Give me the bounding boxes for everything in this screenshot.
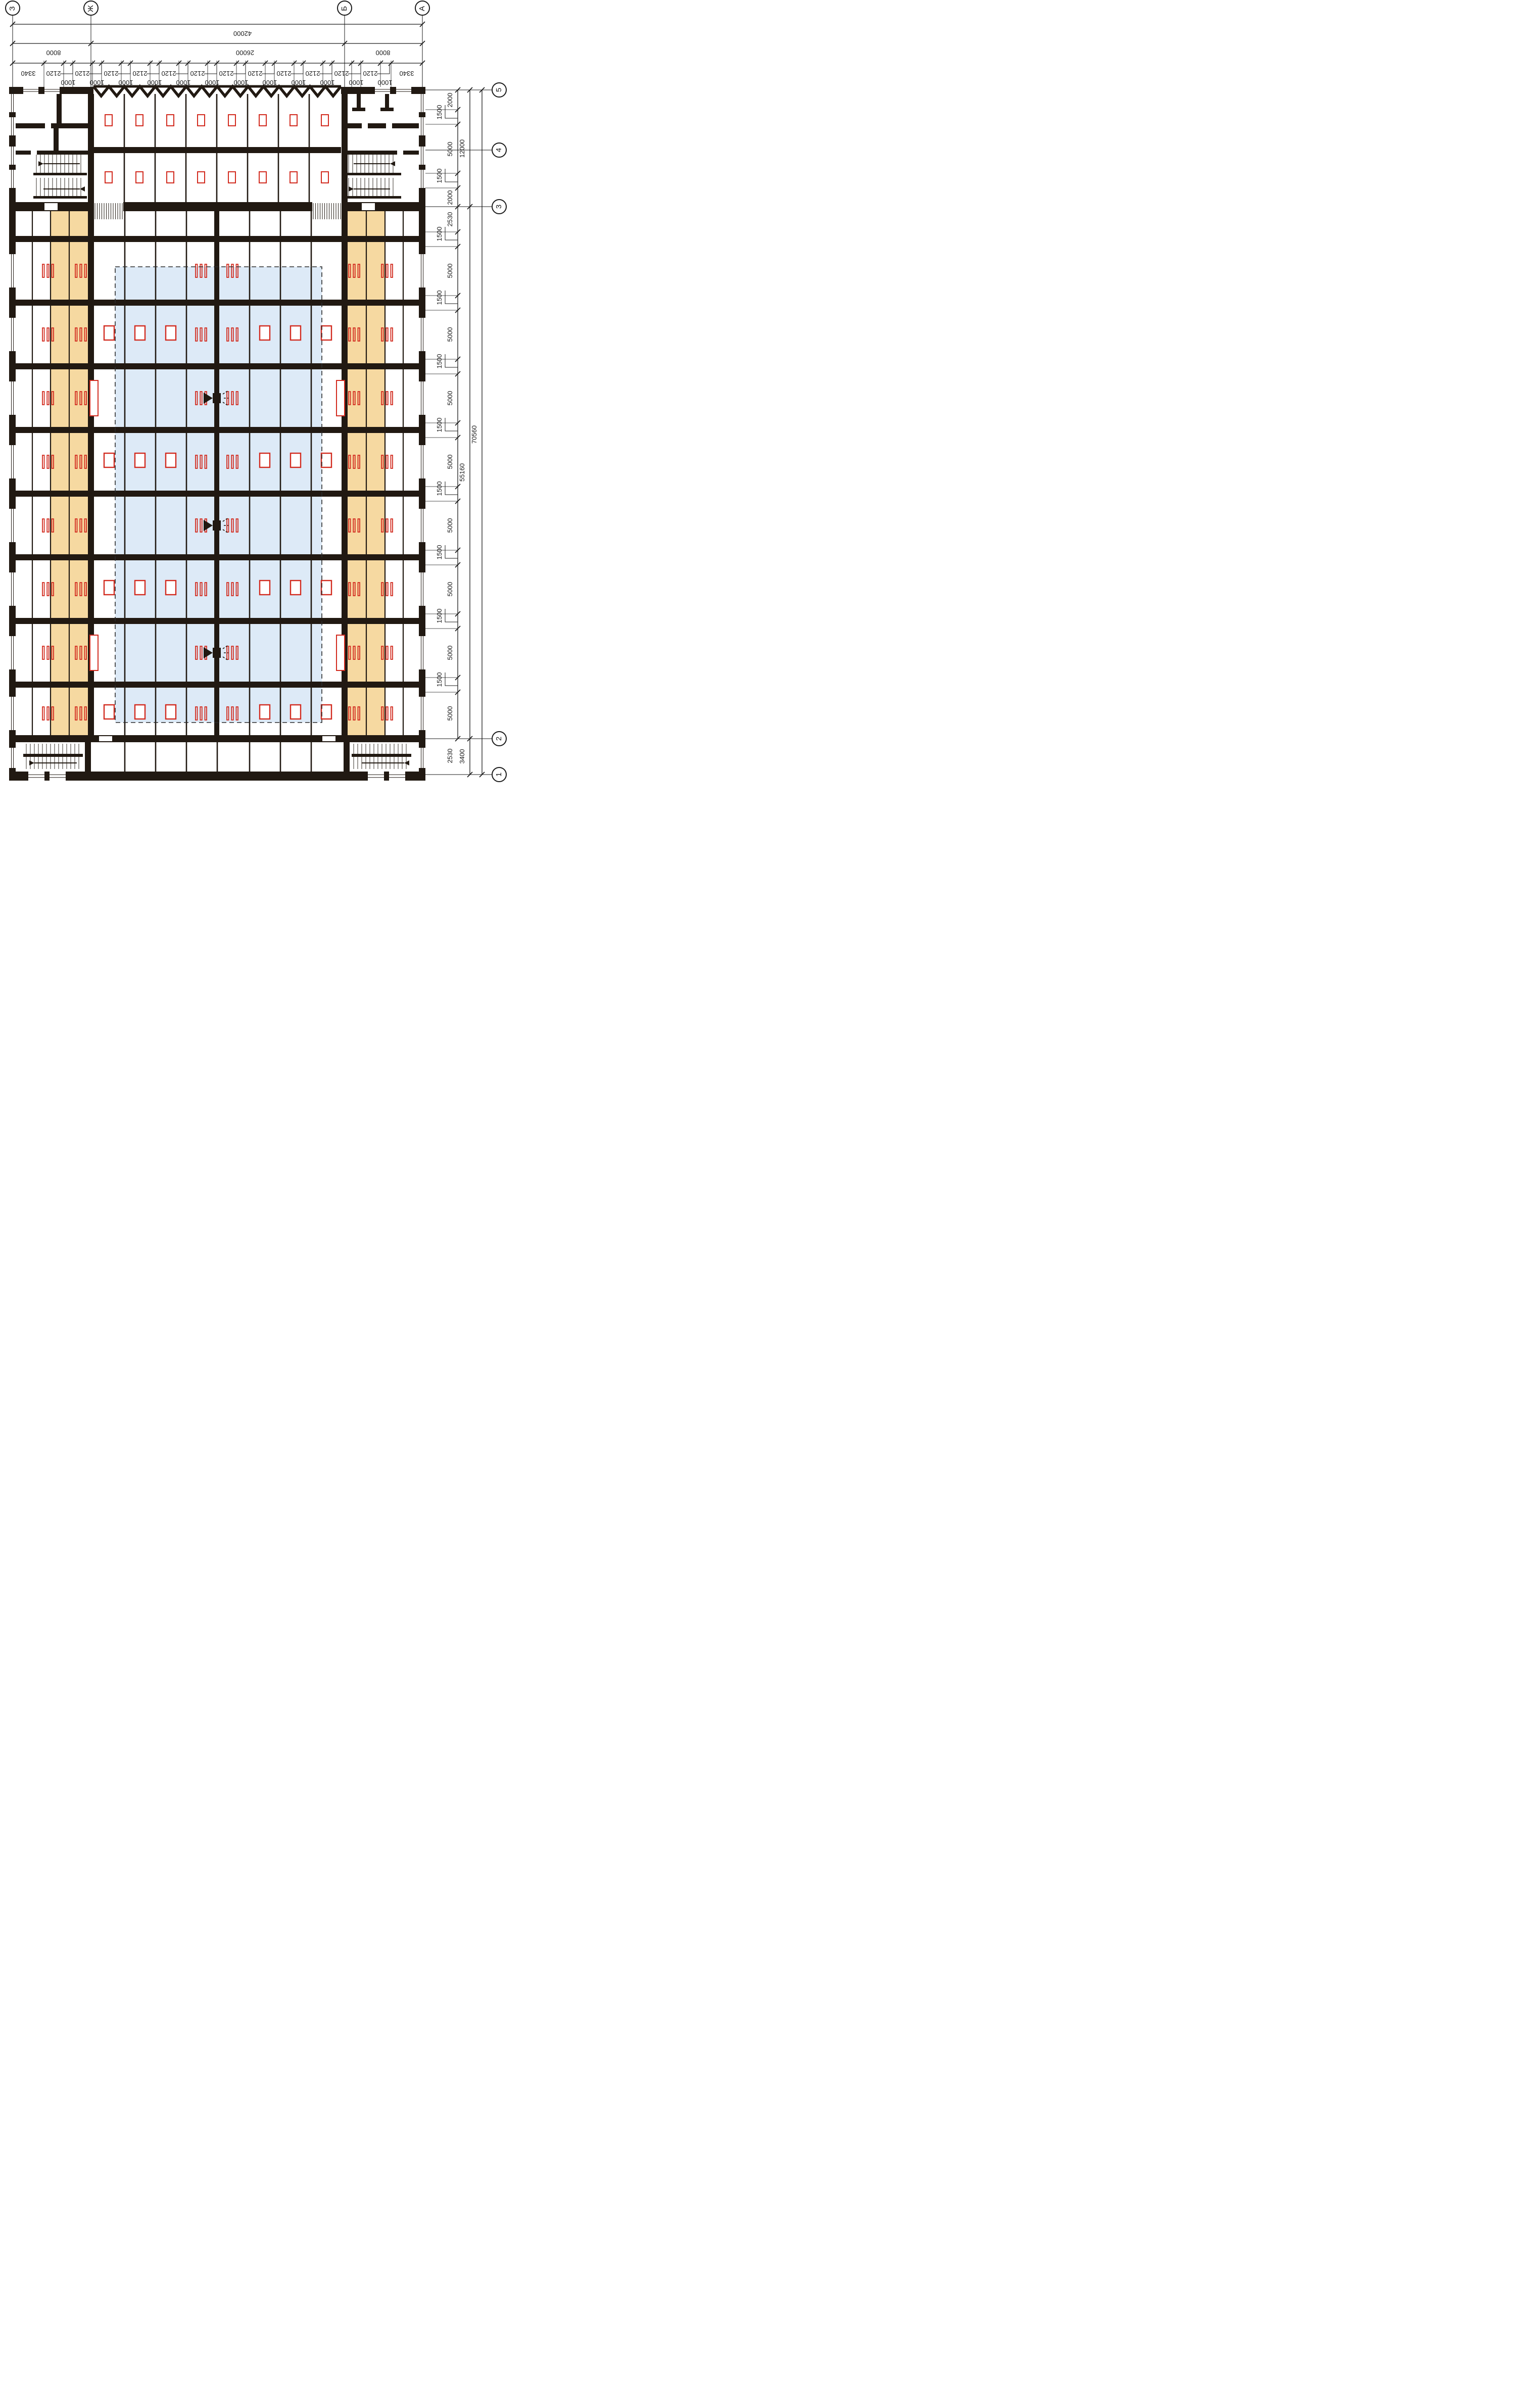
window	[9, 381, 16, 415]
window	[419, 636, 425, 669]
dim-middle: 3400	[458, 749, 466, 764]
dim-leader	[377, 64, 390, 74]
equipment-outline	[135, 326, 145, 340]
heater-symbol	[391, 328, 393, 341]
equipment-outline	[259, 115, 266, 126]
gate-outline	[336, 380, 345, 416]
equipment-outline	[228, 172, 235, 183]
equipment-outline	[105, 115, 112, 126]
equipment-outline	[260, 581, 270, 595]
axis-letter: А	[418, 6, 426, 11]
heater-symbol	[391, 455, 393, 468]
window	[419, 94, 425, 112]
equipment-outline	[291, 581, 301, 595]
dim-seg: 2530	[446, 212, 454, 227]
window	[419, 318, 425, 351]
dim-pier: 1000	[349, 79, 364, 86]
stair-arrow-head	[29, 760, 34, 765]
heater-symbol	[386, 392, 388, 405]
gate-outline	[336, 635, 345, 670]
dim-pier: 1000	[234, 79, 249, 86]
stair-landing	[33, 173, 87, 175]
dim-cell: 5000	[446, 582, 454, 597]
heater-symbol	[386, 707, 388, 720]
dim-band: 1500	[436, 227, 443, 242]
dim-band: 1500	[436, 354, 443, 369]
equipment-outline	[167, 115, 174, 126]
heater-symbol	[386, 264, 388, 277]
dim-cell: 5000	[446, 264, 454, 278]
dim-seg: 2000	[446, 93, 454, 108]
equipment-outline	[228, 115, 235, 126]
heater-symbol	[391, 646, 393, 659]
dim-window: 2120	[133, 70, 148, 77]
stair-arrow-head	[80, 186, 85, 191]
window	[368, 772, 384, 781]
stair-landing	[33, 196, 87, 199]
window	[9, 697, 16, 730]
camera-body	[213, 520, 221, 531]
dim-pier: 1000	[263, 79, 277, 86]
equipment-outline	[166, 581, 176, 595]
wall	[16, 151, 31, 155]
wall	[344, 742, 350, 772]
dim-pier: 1000	[61, 79, 76, 86]
window	[419, 697, 425, 730]
dim-band: 1500	[436, 672, 443, 687]
dim-pier: 1000	[378, 79, 393, 86]
axis-number: 1	[495, 773, 503, 777]
wall	[9, 87, 16, 781]
heater-symbol	[47, 455, 49, 468]
dim-cell: 5000	[446, 706, 454, 721]
window	[419, 117, 425, 135]
equipment-outline	[135, 453, 145, 467]
wall	[16, 735, 419, 742]
wall	[57, 94, 62, 123]
dim-window: 2120	[306, 70, 320, 77]
gate-outline	[90, 635, 98, 670]
heater-symbol	[391, 392, 393, 405]
window	[419, 254, 425, 287]
stair-landing	[23, 754, 83, 757]
dim-seg: 2530	[446, 749, 454, 763]
equipment-outline	[291, 705, 301, 719]
dim-band: 1500	[436, 482, 443, 496]
dim-window: 2120	[104, 70, 119, 77]
dim-window: 2120	[277, 70, 292, 77]
equipment-outline	[290, 115, 297, 126]
heater-symbol	[386, 328, 388, 341]
window	[9, 318, 16, 351]
wall-opening	[44, 203, 58, 210]
dim-band: 1500	[436, 545, 443, 560]
equipment-outline	[321, 115, 328, 126]
wall	[85, 742, 91, 772]
wall	[16, 123, 45, 128]
equipment-outline	[259, 172, 266, 183]
window	[9, 636, 16, 669]
dim-window: 2120	[219, 70, 234, 77]
floor-plan-sheet: З Ж Б А 5 4 3 2 1 42000 8000 26000 8000 …	[0, 0, 507, 792]
camera-body	[213, 648, 221, 658]
window	[419, 572, 425, 606]
heater-symbol	[47, 264, 49, 277]
heater-symbol	[391, 707, 393, 720]
heater-symbol	[42, 646, 44, 659]
window	[9, 117, 16, 135]
wall	[37, 151, 88, 155]
dim-seg: 1500	[436, 105, 443, 120]
top-dimension-labels: 42000 8000 26000 8000 3340 3340 2120 212…	[21, 30, 414, 86]
window	[419, 147, 425, 165]
stair-landing	[352, 754, 411, 757]
dim-cell: 5000	[446, 455, 454, 469]
heater-symbol	[42, 519, 44, 532]
heater-symbol	[47, 707, 49, 720]
dim-seg: 1500	[436, 169, 443, 183]
wall	[54, 127, 59, 151]
wall	[368, 123, 386, 128]
window	[419, 381, 425, 415]
wall	[419, 87, 425, 781]
heater-symbol	[47, 646, 49, 659]
equipment-outline	[135, 581, 145, 595]
wall	[93, 147, 341, 153]
dim-pier: 1000	[205, 79, 220, 86]
stair-arrow-head	[349, 186, 354, 191]
floor-plan-drawing: З Ж Б А 5 4 3 2 1 42000 8000 26000 8000 …	[0, 0, 507, 792]
equipment-outline	[105, 172, 112, 183]
window	[9, 94, 16, 112]
axis-number: 3	[495, 205, 503, 209]
right-dimension-labels: 2000 1500 5000 1500 2000 2530 1500 1500 …	[436, 93, 478, 764]
heater-symbol	[47, 392, 49, 405]
window	[50, 772, 66, 781]
window	[9, 445, 16, 478]
equipment-outline	[198, 172, 205, 183]
equipment-outline	[166, 705, 176, 719]
stair-landing	[348, 196, 401, 199]
dim-window: 2120	[248, 70, 263, 77]
heater-symbol	[42, 707, 44, 720]
equipment-outline	[321, 453, 331, 467]
stair-landing	[348, 173, 401, 175]
wall-opening	[99, 736, 112, 741]
dim-window: 2120	[75, 70, 90, 77]
axis-number: 2	[495, 737, 503, 741]
dim-seg: 2000	[446, 190, 454, 205]
dim-window: 2120	[190, 70, 205, 77]
window	[419, 748, 425, 768]
dim-corner: 3340	[400, 70, 414, 77]
equipment-outline	[290, 172, 297, 183]
window	[23, 87, 38, 94]
heater-symbol	[391, 519, 393, 532]
dim-middle: 55160	[458, 463, 466, 482]
dim-cell: 5000	[446, 327, 454, 342]
axis-bubbles-numbers	[492, 83, 506, 782]
window	[375, 87, 390, 94]
wall	[9, 772, 425, 781]
axis-letter: Ж	[86, 5, 95, 12]
dim-cell: 5000	[446, 646, 454, 660]
stair-arrow-head	[38, 161, 43, 166]
heater-symbol	[386, 455, 388, 468]
dim-band: 1500	[436, 418, 443, 432]
dim-window: 2120	[162, 70, 176, 77]
dim-seg: 5000	[446, 142, 454, 157]
equipment-outline	[260, 705, 270, 719]
heater-symbol	[386, 519, 388, 532]
dim-window: 2120	[363, 70, 378, 77]
axis-letter: Б	[340, 6, 349, 11]
equipment-outline	[135, 705, 145, 719]
dim-pier: 1000	[320, 79, 335, 86]
axis-letter-labels: З Ж Б А	[8, 5, 426, 12]
wall	[352, 108, 365, 111]
wall	[403, 151, 419, 155]
wall	[342, 151, 397, 155]
window	[9, 170, 16, 188]
heater-symbol	[42, 328, 44, 341]
equipment-outline	[291, 326, 301, 340]
equipment-outline	[321, 581, 331, 595]
dim-span: 8000	[46, 49, 61, 57]
window	[9, 147, 16, 165]
heater-symbol	[386, 583, 388, 596]
dim-pier: 1000	[148, 79, 162, 86]
dim-middle: 12000	[458, 139, 466, 158]
window	[9, 748, 16, 768]
dim-total-height: 70560	[470, 425, 478, 444]
dim-span: 26000	[236, 49, 254, 57]
window	[9, 572, 16, 606]
heater-symbol	[391, 264, 393, 277]
equipment-outline	[136, 115, 143, 126]
heater-symbol	[42, 392, 44, 405]
axis-letter: З	[8, 6, 17, 11]
equipment-outline	[321, 172, 328, 183]
axis-bubbles-letters	[6, 1, 429, 15]
heater-symbol	[42, 583, 44, 596]
heater-symbol	[47, 328, 49, 341]
equipment-outline	[104, 453, 114, 467]
heater-symbol	[391, 583, 393, 596]
dim-pier: 1000	[292, 79, 306, 86]
heater-symbol	[42, 455, 44, 468]
equipment-outline	[104, 705, 114, 719]
wall-opening	[362, 203, 375, 210]
wall	[380, 108, 394, 111]
equipment-outline	[321, 326, 331, 340]
equipment-outline	[104, 326, 114, 340]
wall-opening	[322, 736, 335, 741]
dim-band: 1500	[436, 609, 443, 623]
window	[9, 509, 16, 542]
equipment-outline	[166, 326, 176, 340]
equipment-outline	[198, 115, 205, 126]
gate-outline	[90, 380, 98, 416]
axis-number: 5	[495, 88, 503, 92]
dim-corner: 3340	[21, 70, 36, 77]
stair-arrow-head	[390, 161, 395, 166]
dim-pier: 1000	[90, 79, 105, 86]
dim-cell: 5000	[446, 518, 454, 533]
heater-symbol	[47, 519, 49, 532]
window	[419, 445, 425, 478]
window	[28, 772, 44, 781]
wall	[392, 123, 419, 128]
window	[419, 170, 425, 188]
window	[9, 254, 16, 287]
axis-number-labels: 5 4 3 2 1	[495, 88, 503, 777]
equipment-outline	[260, 326, 270, 340]
window	[419, 509, 425, 542]
equipment-outline	[136, 172, 143, 183]
equipment-outline	[104, 581, 114, 595]
equipment-outline	[167, 172, 174, 183]
window	[389, 772, 405, 781]
equipment-outline	[260, 453, 270, 467]
stair-arrow-head	[404, 760, 409, 765]
axis-number: 4	[495, 148, 503, 152]
equipment-outline	[291, 453, 301, 467]
dim-span: 8000	[376, 49, 391, 57]
heater-symbol	[42, 264, 44, 277]
dim-window: 2120	[334, 70, 349, 77]
window	[396, 87, 411, 94]
dim-pier: 1000	[176, 79, 191, 86]
camera-body	[213, 393, 221, 403]
dim-pier: 1000	[119, 79, 133, 86]
dim-window: 2120	[46, 70, 61, 77]
dim-band: 1500	[436, 291, 443, 305]
equipment-outline	[166, 453, 176, 467]
dim-cell: 5000	[446, 391, 454, 406]
heater-symbol	[47, 583, 49, 596]
window	[44, 87, 60, 94]
equipment-outline	[321, 705, 331, 719]
wall	[342, 123, 362, 128]
dim-total-width: 42000	[233, 30, 252, 37]
heater-symbol	[386, 646, 388, 659]
